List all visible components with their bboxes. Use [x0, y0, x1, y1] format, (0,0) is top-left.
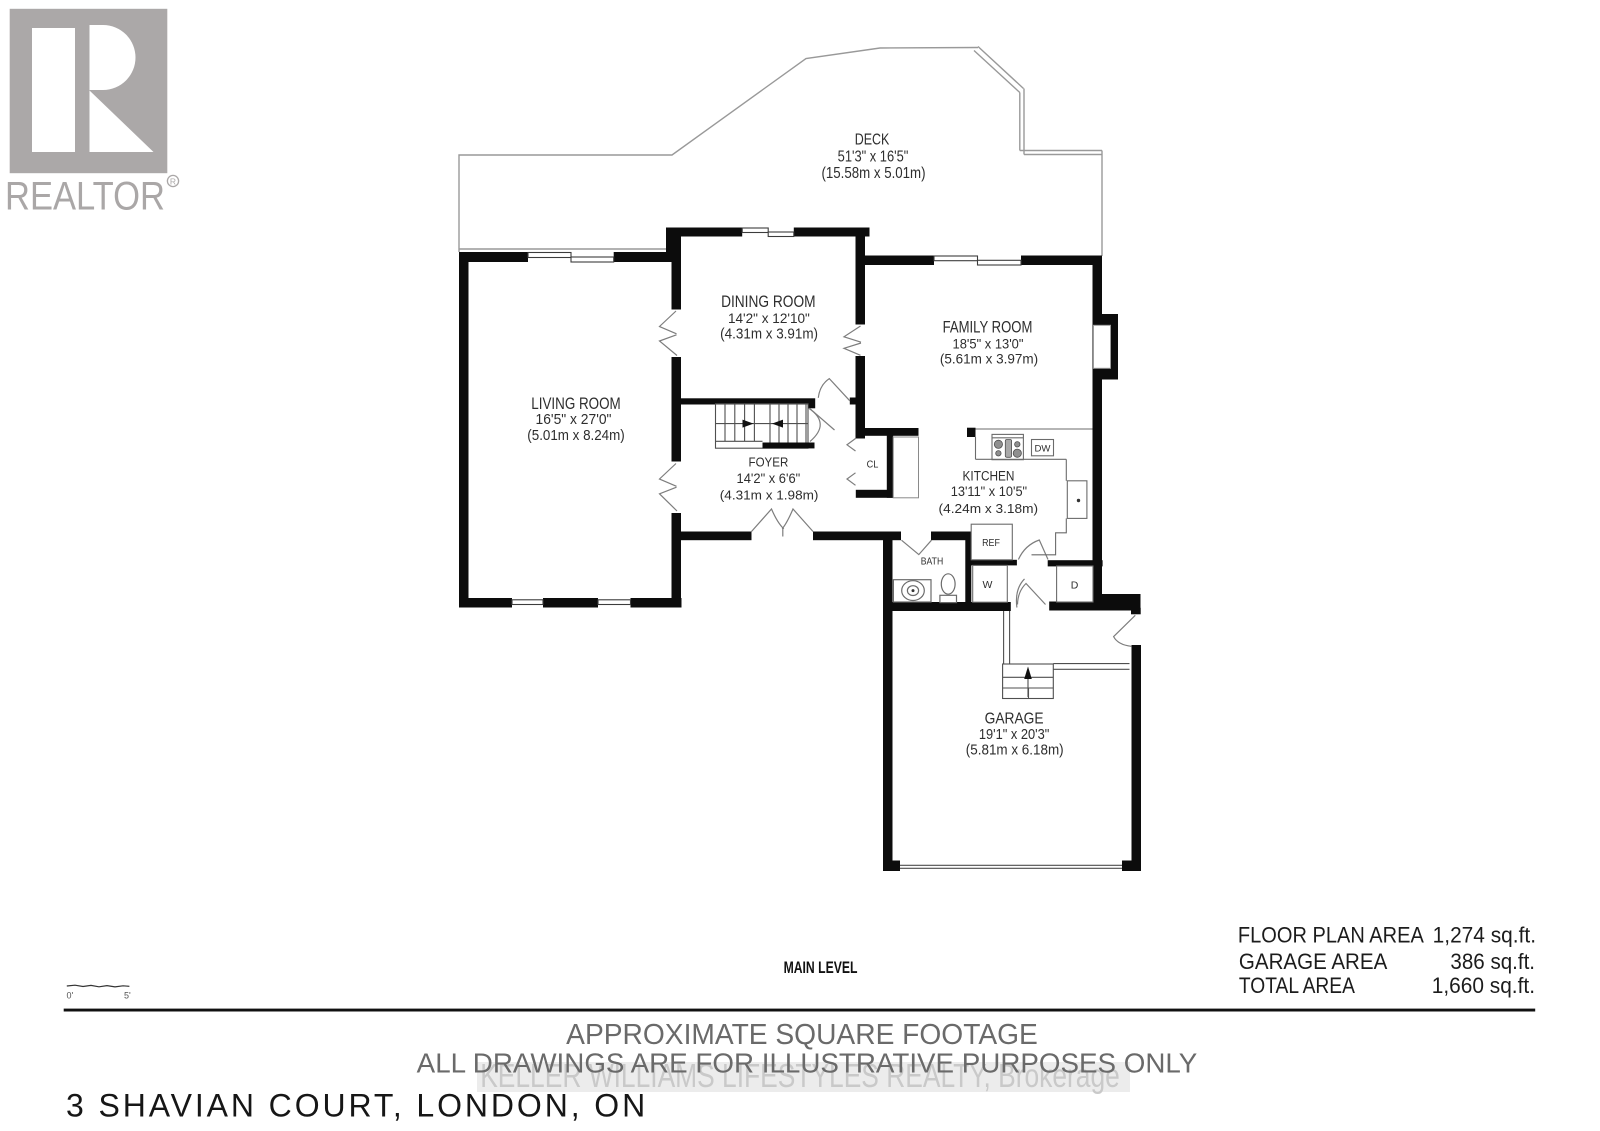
svg-text:13'11" x 10'5": 13'11" x 10'5" — [951, 483, 1028, 499]
svg-text:FOYER: FOYER — [749, 455, 789, 470]
svg-text:14'2" x 12'10": 14'2" x 12'10" — [728, 311, 810, 326]
svg-text:CL: CL — [867, 459, 879, 471]
svg-text:TOTAL AREA: TOTAL AREA — [1239, 973, 1355, 998]
svg-text:51'3" x 16'5": 51'3" x 16'5" — [838, 148, 909, 165]
svg-text:APPROXIMATE SQUARE FOOTAGE: APPROXIMATE SQUARE FOOTAGE — [566, 1019, 1038, 1051]
svg-text:5': 5' — [124, 991, 131, 1001]
svg-text:3 SHAVIAN COURT, LONDON, ON: 3 SHAVIAN COURT, LONDON, ON — [66, 1088, 648, 1124]
svg-text:386 sq.ft.: 386 sq.ft. — [1450, 948, 1535, 974]
svg-text:(5.81m x 6.18m): (5.81m x 6.18m) — [966, 741, 1064, 758]
svg-text:19'1" x 20'3": 19'1" x 20'3" — [979, 726, 1050, 742]
svg-text:D: D — [1071, 579, 1079, 591]
svg-text:(4.31m x 3.91m): (4.31m x 3.91m) — [720, 325, 818, 342]
svg-text:(4.31m x 1.98m): (4.31m x 1.98m) — [720, 488, 819, 502]
svg-text:FAMILY ROOM: FAMILY ROOM — [943, 318, 1033, 337]
svg-text:R: R — [170, 177, 176, 187]
svg-text:1,660 sq.ft.: 1,660 sq.ft. — [1432, 972, 1535, 998]
svg-text:REALTOR: REALTOR — [5, 173, 165, 218]
svg-text:DW: DW — [1035, 444, 1051, 455]
svg-text:0': 0' — [67, 991, 74, 1001]
svg-text:GARAGE: GARAGE — [985, 709, 1044, 727]
svg-text:(15.58m x 5.01m): (15.58m x 5.01m) — [821, 165, 925, 182]
svg-text:FLOOR PLAN AREA: FLOOR PLAN AREA — [1238, 923, 1425, 948]
svg-text:REF: REF — [982, 538, 1000, 550]
svg-text:MAIN LEVEL: MAIN LEVEL — [784, 959, 858, 977]
svg-text:DECK: DECK — [855, 131, 890, 149]
svg-text:DINING ROOM: DINING ROOM — [721, 293, 815, 312]
svg-text:W: W — [983, 579, 993, 591]
svg-text:LIVING ROOM: LIVING ROOM — [531, 395, 620, 414]
svg-text:KITCHEN: KITCHEN — [963, 469, 1015, 484]
svg-text:(5.61m x 3.97m): (5.61m x 3.97m) — [940, 351, 1038, 366]
svg-text:(5.01m x 8.24m): (5.01m x 8.24m) — [527, 426, 624, 443]
svg-text:BATH: BATH — [921, 556, 944, 567]
svg-text:1,274 sq.ft.: 1,274 sq.ft. — [1433, 922, 1536, 948]
svg-text:ALL DRAWINGS ARE FOR ILLUSTRAT: ALL DRAWINGS ARE FOR ILLUSTRATIVE PURPOS… — [417, 1047, 1198, 1078]
svg-text:(4.24m x 3.18m): (4.24m x 3.18m) — [939, 501, 1038, 516]
svg-text:18'5" x 13'0": 18'5" x 13'0" — [953, 336, 1024, 352]
svg-text:14'2" x 6'6": 14'2" x 6'6" — [737, 471, 801, 486]
svg-text:GARAGE AREA: GARAGE AREA — [1239, 949, 1388, 974]
